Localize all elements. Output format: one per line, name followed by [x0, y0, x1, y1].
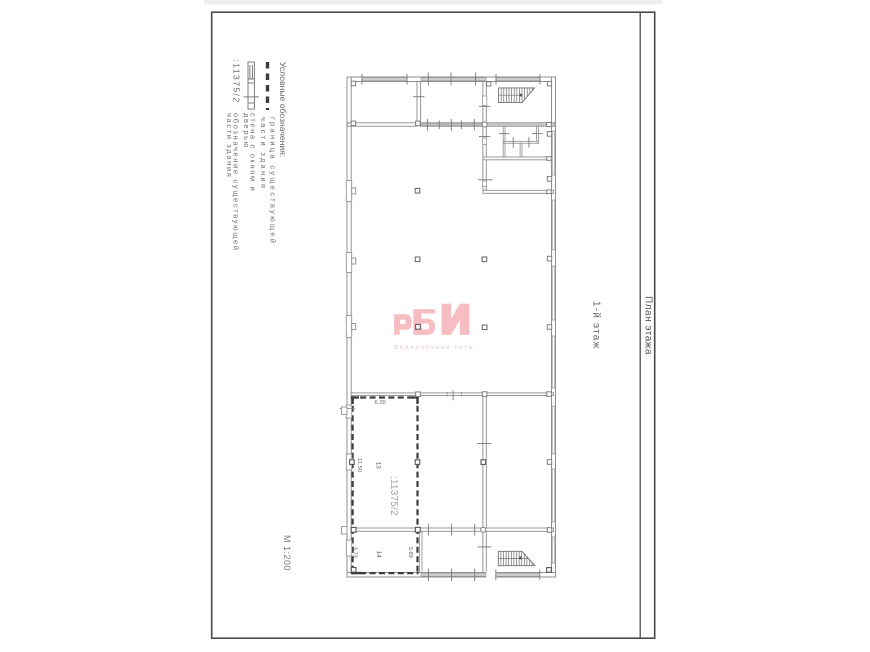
- svg-text::11375/2: :11375/2: [388, 476, 399, 516]
- svg-text:3.89: 3.89: [407, 547, 413, 558]
- svg-text:части здания: части здания: [259, 117, 268, 190]
- svg-text:Условные обозначения:: Условные обозначения:: [278, 62, 288, 157]
- svg-text:части здания: части здания: [225, 113, 234, 178]
- svg-text:3.73: 3.73: [351, 547, 357, 558]
- svg-text:14: 14: [375, 551, 382, 559]
- svg-text:дверью: дверью: [242, 113, 251, 149]
- svg-text:11.50: 11.50: [356, 458, 362, 472]
- svg-text:граница существующей: граница существующей: [269, 117, 278, 245]
- svg-text:М 1:200: М 1:200: [282, 535, 292, 571]
- svg-text:1-й этаж: 1-й этаж: [591, 301, 602, 349]
- svg-text:13: 13: [374, 462, 381, 470]
- svg-text:План этажа: План этажа: [643, 296, 654, 355]
- svg-text::11375/2: :11375/2: [232, 60, 242, 104]
- svg-text:6.20: 6.20: [375, 400, 386, 406]
- svg-text:Федеральная сеть: Федеральная сеть: [394, 344, 474, 351]
